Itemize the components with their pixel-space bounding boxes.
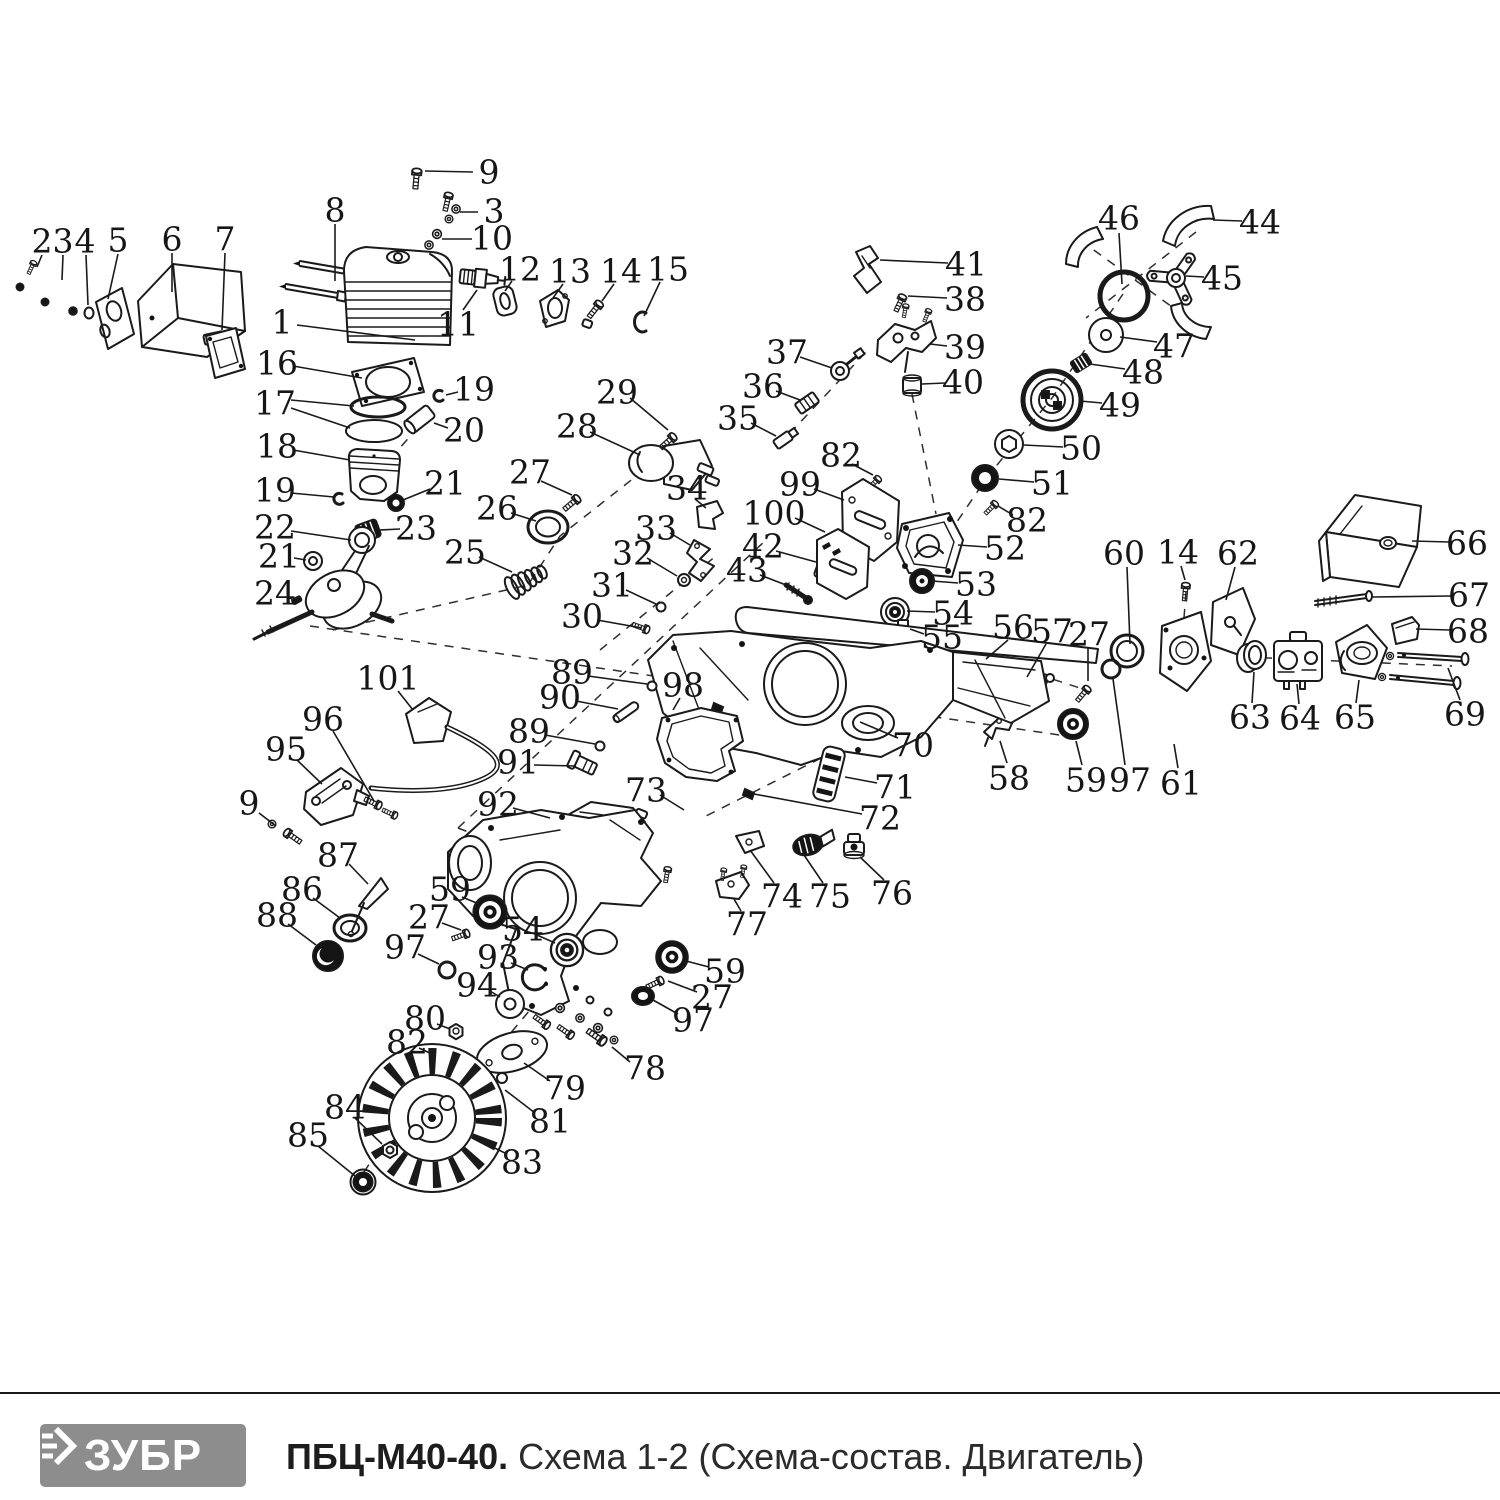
leader-line bbox=[1127, 567, 1130, 644]
part-number-27: 27 bbox=[509, 453, 551, 492]
part-number-95: 95 bbox=[265, 730, 307, 769]
leader-line bbox=[908, 296, 947, 298]
part-bushing-40 bbox=[903, 375, 921, 396]
exploded-parts-diagram: 2345679831012131415111161719201819212223… bbox=[0, 0, 1500, 1392]
part-number-44: 44 bbox=[1239, 203, 1281, 242]
part-washer-47 bbox=[1089, 318, 1123, 352]
part-cylinder-1 bbox=[344, 247, 452, 345]
part-number-21: 21 bbox=[258, 537, 300, 576]
part-number-67: 67 bbox=[1448, 576, 1490, 615]
part-screw-14b bbox=[1180, 582, 1190, 601]
part-number-73: 73 bbox=[625, 771, 667, 810]
part-number-1: 1 bbox=[272, 303, 293, 342]
part-screw-96b bbox=[381, 806, 399, 819]
part-number-7: 7 bbox=[215, 220, 236, 259]
leader-line bbox=[293, 450, 350, 460]
part-number-97: 97 bbox=[384, 928, 426, 967]
part-spacer-68 bbox=[1392, 617, 1419, 644]
part-elbow-91 bbox=[567, 750, 599, 778]
part-valve-37 bbox=[831, 348, 865, 380]
brand-logo-icon bbox=[40, 1424, 82, 1468]
part-piston-18 bbox=[349, 449, 400, 501]
part-number-11: 11 bbox=[437, 305, 479, 344]
part-small-fasteners-2-3-4 bbox=[17, 260, 94, 319]
part-airbox-66 bbox=[1319, 495, 1421, 587]
brand-name: ЗУБР bbox=[84, 1434, 202, 1478]
part-intake-boot-65 bbox=[1336, 625, 1387, 679]
part-number-29: 29 bbox=[596, 373, 638, 412]
part-circlip-19a bbox=[434, 390, 443, 401]
part-number-30: 30 bbox=[561, 597, 603, 636]
part-flange-63 bbox=[1237, 641, 1266, 672]
part-number-97: 97 bbox=[672, 1001, 714, 1040]
part-number-77: 77 bbox=[726, 905, 768, 944]
part-number-34: 34 bbox=[666, 469, 708, 508]
part-number-25: 25 bbox=[444, 533, 486, 572]
part-screw-82b bbox=[983, 499, 1000, 516]
part-number-96: 96 bbox=[302, 700, 344, 739]
leader-line bbox=[1213, 220, 1242, 221]
parts-artwork bbox=[17, 168, 1469, 1195]
part-number-23: 23 bbox=[395, 509, 437, 548]
part-number-26: 26 bbox=[476, 489, 518, 528]
part-washer-32 bbox=[678, 574, 690, 586]
footer-divider bbox=[0, 1392, 1500, 1394]
part-number-13: 13 bbox=[549, 252, 591, 291]
leader-line bbox=[880, 260, 948, 263]
leader-line bbox=[1416, 629, 1450, 630]
part-number-27: 27 bbox=[1068, 615, 1110, 654]
part-drum-59c bbox=[656, 941, 688, 973]
part-washer-31 bbox=[657, 603, 666, 612]
part-pin-90 bbox=[612, 701, 640, 724]
part-chain-catcher-74 bbox=[662, 831, 764, 883]
part-number-82: 82 bbox=[820, 436, 862, 475]
part-nut-14 bbox=[582, 319, 593, 329]
part-number-75: 75 bbox=[809, 877, 851, 916]
part-flywheel-83 bbox=[358, 1044, 506, 1192]
leader-line bbox=[425, 171, 473, 172]
leader-line bbox=[999, 479, 1034, 482]
part-number-51: 51 bbox=[1031, 464, 1073, 503]
part-number-59: 59 bbox=[1065, 761, 1107, 800]
part-oiler-39 bbox=[877, 303, 936, 372]
part-number-64: 64 bbox=[1279, 699, 1321, 738]
part-number-12: 12 bbox=[499, 250, 541, 289]
part-number-15: 15 bbox=[647, 250, 689, 289]
part-oring-97c bbox=[632, 987, 654, 1005]
leader-line bbox=[958, 545, 987, 547]
part-number-60: 60 bbox=[1103, 534, 1145, 573]
part-number-41: 41 bbox=[945, 245, 987, 284]
part-fitting-36 bbox=[795, 392, 820, 414]
part-nut-85 bbox=[351, 1170, 376, 1195]
leader-line bbox=[1113, 679, 1125, 765]
leader-line bbox=[291, 531, 351, 540]
part-number-46: 46 bbox=[1098, 199, 1140, 238]
part-number-88: 88 bbox=[256, 896, 298, 935]
schema-subtitle: Схема 1-2 (Схема-состав. Двигатель) bbox=[508, 1436, 1144, 1477]
part-plug-cap-101 bbox=[371, 698, 497, 790]
part-fitting-35 bbox=[773, 427, 799, 450]
leader-line bbox=[534, 765, 576, 766]
part-number-8: 8 bbox=[325, 191, 346, 230]
part-number-57: 57 bbox=[1031, 612, 1073, 651]
part-clamp-87 bbox=[349, 878, 389, 937]
part-washer-21b bbox=[304, 552, 322, 570]
page: 2345679831012131415111161719201819212223… bbox=[0, 0, 1500, 1500]
part-number-65: 65 bbox=[1334, 698, 1376, 737]
part-oil-seal-26 bbox=[528, 511, 568, 543]
part-number-5: 5 bbox=[108, 221, 129, 260]
part-number-14: 14 bbox=[1157, 533, 1199, 572]
leader-line bbox=[588, 676, 647, 684]
part-number-45: 45 bbox=[1201, 259, 1243, 298]
part-screw-27a bbox=[561, 494, 582, 513]
part-grommet-76 bbox=[844, 834, 864, 859]
part-number-76: 76 bbox=[871, 874, 913, 913]
part-number-20: 20 bbox=[443, 411, 485, 450]
part-number-94: 94 bbox=[456, 966, 498, 1005]
schema-caption: ПБЦ-М40-40. Схема 1-2 (Схема-состав. Дви… bbox=[286, 1436, 1144, 1478]
part-elbow-41 bbox=[854, 246, 881, 293]
part-worm-gear-25 bbox=[502, 560, 551, 601]
part-number-81: 81 bbox=[529, 1102, 571, 1141]
part-number-98: 98 bbox=[662, 666, 704, 705]
part-number-97: 97 bbox=[1109, 761, 1151, 800]
part-starter-pulley-49 bbox=[1023, 371, 1081, 429]
part-number-9: 9 bbox=[239, 784, 260, 823]
part-number-9: 9 bbox=[479, 153, 500, 192]
part-number-69: 69 bbox=[1444, 695, 1486, 734]
part-number-58: 58 bbox=[988, 759, 1030, 798]
part-cover-52 bbox=[897, 513, 963, 577]
part-nut-80 bbox=[450, 1024, 463, 1039]
part-circlip-19b bbox=[334, 493, 343, 504]
part-bracket-77 bbox=[716, 865, 749, 899]
part-oring-46 bbox=[1100, 272, 1148, 320]
part-washer-94 bbox=[496, 990, 524, 1018]
part-screw-38 bbox=[892, 293, 907, 313]
part-carburetor-64 bbox=[1274, 632, 1322, 689]
part-screws-69 bbox=[1378, 652, 1468, 689]
leader-line bbox=[576, 701, 618, 709]
part-cup-washer-51 bbox=[972, 465, 998, 491]
part-oring-97a bbox=[1102, 660, 1120, 678]
leader-line bbox=[1119, 233, 1122, 284]
part-number-16: 16 bbox=[256, 344, 298, 383]
leader-line bbox=[1120, 337, 1157, 342]
part-gasket-98 bbox=[657, 708, 743, 781]
part-number-17: 17 bbox=[254, 384, 296, 423]
part-seal-53 bbox=[910, 569, 934, 593]
part-number-19: 19 bbox=[453, 370, 495, 409]
part-number-84: 84 bbox=[324, 1088, 366, 1127]
leader-line bbox=[545, 735, 595, 744]
part-number-92: 92 bbox=[477, 785, 519, 824]
part-number-49: 49 bbox=[1099, 386, 1141, 425]
leader-line bbox=[1024, 445, 1063, 447]
part-pump-mount-plate bbox=[1160, 612, 1211, 691]
part-screw-14 bbox=[586, 299, 605, 320]
part-number-56: 56 bbox=[992, 608, 1034, 647]
part-number-82: 82 bbox=[386, 1023, 428, 1062]
part-number-40: 40 bbox=[942, 363, 984, 402]
part-number-50: 50 bbox=[1060, 429, 1102, 468]
part-ball-89a bbox=[648, 682, 657, 691]
part-number-2: 2 bbox=[32, 222, 53, 261]
part-wrist-pin-20 bbox=[402, 404, 435, 435]
leader-line bbox=[1372, 596, 1451, 597]
part-number-91: 91 bbox=[497, 743, 539, 782]
part-cap-88 bbox=[313, 941, 343, 971]
part-hub-50 bbox=[995, 430, 1023, 458]
part-ring-86 bbox=[334, 915, 366, 941]
part-ball-89b bbox=[596, 742, 605, 751]
part-head-screws-9-3-10 bbox=[411, 168, 460, 249]
part-number-21: 21 bbox=[424, 464, 466, 503]
part-number-43: 43 bbox=[726, 551, 768, 590]
part-number-85: 85 bbox=[287, 1116, 329, 1155]
part-washer-84 bbox=[383, 1142, 397, 1158]
part-number-6: 6 bbox=[162, 220, 183, 259]
leader-line bbox=[1412, 541, 1449, 542]
part-number-62: 62 bbox=[1217, 534, 1259, 573]
leader-line bbox=[754, 794, 862, 814]
part-number-101: 101 bbox=[357, 659, 420, 698]
part-number-18: 18 bbox=[256, 427, 298, 466]
leader-line bbox=[845, 777, 877, 783]
part-number-38: 38 bbox=[944, 280, 986, 319]
part-number-19: 19 bbox=[254, 471, 296, 510]
part-screw-27c bbox=[451, 929, 471, 943]
part-number-3: 3 bbox=[53, 222, 74, 261]
part-number-14: 14 bbox=[600, 252, 642, 291]
part-pickup-75 bbox=[791, 829, 837, 859]
part-number-52: 52 bbox=[984, 529, 1026, 568]
leader-line bbox=[291, 408, 350, 428]
part-spring-48 bbox=[1070, 353, 1092, 373]
part-ratchet-45 bbox=[1147, 251, 1197, 306]
leader-line bbox=[907, 611, 935, 612]
leader-line bbox=[291, 400, 354, 406]
part-number-63: 63 bbox=[1229, 698, 1271, 737]
model-code: ПБЦ-М40-40. bbox=[286, 1436, 508, 1477]
part-number-35: 35 bbox=[717, 399, 759, 438]
part-number-78: 78 bbox=[624, 1049, 666, 1088]
part-bearing-54b bbox=[551, 934, 583, 966]
brand-logo: ЗУБР bbox=[40, 1424, 246, 1487]
part-number-68: 68 bbox=[1447, 612, 1489, 651]
part-number-4: 4 bbox=[75, 222, 96, 261]
part-drum-59a bbox=[1058, 709, 1088, 739]
part-number-28: 28 bbox=[556, 407, 598, 446]
part-number-70: 70 bbox=[892, 726, 934, 765]
part-number-61: 61 bbox=[1160, 764, 1202, 803]
part-number-39: 39 bbox=[944, 328, 986, 367]
part-number-24: 24 bbox=[254, 574, 296, 613]
part-stud-67 bbox=[1315, 591, 1372, 607]
part-number-55: 55 bbox=[921, 618, 963, 657]
part-oring-97b bbox=[439, 962, 455, 978]
part-tensioner-screw-43 bbox=[786, 583, 812, 604]
part-muffler-gasket-5 bbox=[96, 288, 134, 349]
part-number-72: 72 bbox=[859, 799, 901, 838]
part-number-87: 87 bbox=[317, 836, 359, 875]
leader-line bbox=[1090, 364, 1125, 369]
part-number-83: 83 bbox=[501, 1143, 543, 1182]
part-number-66: 66 bbox=[1446, 524, 1488, 563]
leader-line bbox=[86, 255, 88, 305]
leader-line bbox=[291, 493, 334, 497]
